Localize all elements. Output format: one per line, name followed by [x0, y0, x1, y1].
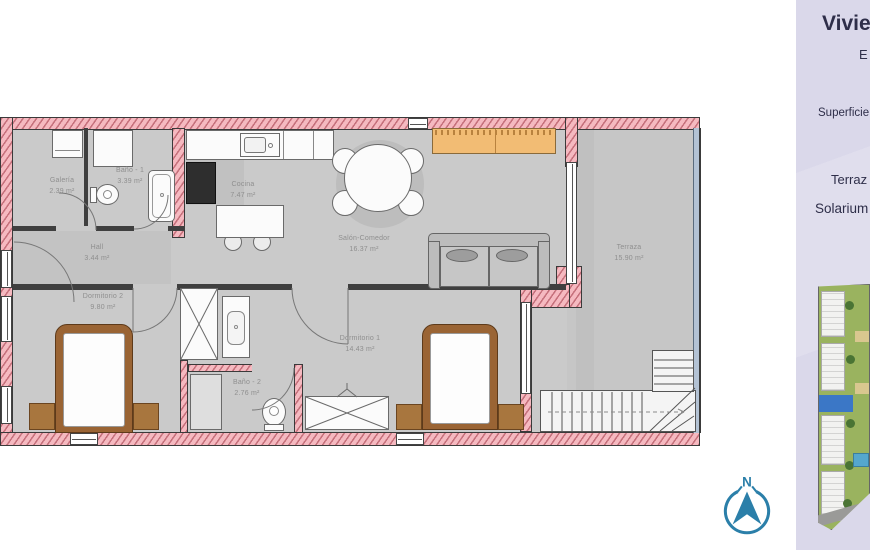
tree [846, 419, 855, 428]
closet-x-lines [181, 289, 388, 429]
panel-title: Vivien [822, 12, 870, 36]
stair-treads [552, 360, 695, 431]
room-area: 3.44 m² [84, 254, 109, 265]
room-name: Dormitorio 1 [340, 334, 381, 345]
tree [846, 355, 855, 364]
room-label-bano1: Baño - 13.39 m² [116, 166, 144, 188]
plan-linework [0, 0, 870, 550]
building-block [821, 343, 845, 391]
room-label-hall: Hall3.44 m² [84, 243, 109, 265]
terraza-label: Terraz [831, 172, 867, 187]
site-plan-thumbnail [818, 284, 870, 530]
panel-subtitle: E [859, 47, 868, 62]
room-label-dormitorio2: Dormitorio 29.80 m² [83, 292, 124, 314]
north-compass-icon: N [716, 472, 778, 542]
room-name: Terraza [614, 243, 643, 254]
room-label-cocina: Cocina7.47 m² [230, 180, 255, 202]
solarium-label: Solarium [815, 201, 868, 216]
superficie-label: Superficie [818, 107, 869, 119]
room-name: Hall [84, 243, 109, 254]
pool [853, 453, 869, 467]
building-block [821, 291, 845, 337]
room-label-salon: Salón-Comedor16.37 m² [338, 234, 390, 256]
room-area: 16.37 m² [338, 245, 390, 256]
building-block [821, 415, 845, 465]
room-label-dormitorio1: Dormitorio 114.43 m² [340, 334, 381, 356]
stair-walkline [548, 409, 684, 415]
door-arcs [14, 193, 348, 410]
room-name: Salón-Comedor [338, 234, 390, 245]
room-label-galeria: Galería2.39 m² [49, 176, 74, 198]
room-name: Baño - 1 [116, 166, 144, 177]
compass-n-label: N [742, 474, 752, 489]
tree [845, 301, 854, 310]
solarium-patch [855, 383, 869, 394]
room-label-terraza: Terraza15.90 m² [614, 243, 643, 265]
brochure-page: Galería2.39 m² Baño - 13.39 m² Cocina7.4… [0, 0, 870, 550]
unit-location-marker [819, 395, 853, 412]
room-area: 14.43 m² [340, 345, 381, 356]
room-name: Baño - 2 [233, 378, 261, 389]
room-area: 2.39 m² [49, 187, 74, 198]
room-name: Dormitorio 2 [83, 292, 124, 303]
room-label-bano2: Baño - 22.76 m² [233, 378, 261, 400]
room-area: 9.80 m² [83, 303, 124, 314]
room-area: 2.76 m² [233, 389, 261, 400]
room-name: Galería [49, 176, 74, 187]
solarium-patch [855, 331, 869, 342]
room-area: 15.90 m² [614, 254, 643, 265]
room-name: Cocina [230, 180, 255, 191]
room-area: 3.39 m² [116, 177, 144, 188]
room-area: 7.47 m² [230, 191, 255, 202]
